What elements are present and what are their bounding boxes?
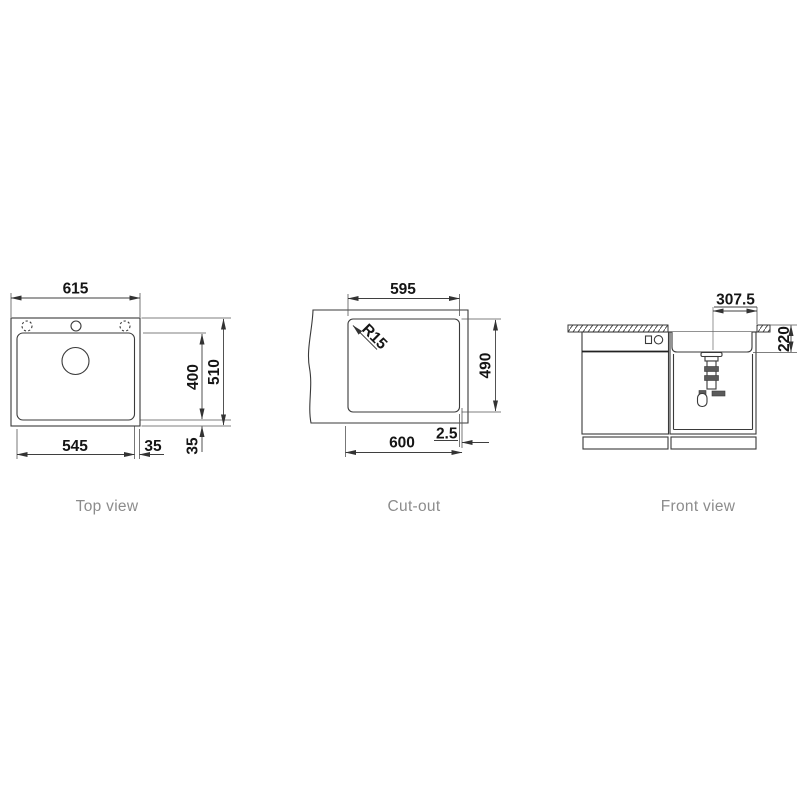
top-view-label: Top view — [76, 498, 139, 515]
plinth-right — [671, 437, 756, 449]
bowl-outline — [17, 333, 135, 420]
dim-front-bowl-depth: 220 — [776, 326, 793, 352]
dim-offset-right: 35 — [144, 438, 162, 455]
dim-edge-offset: 2.5 — [436, 426, 458, 443]
countertop-hatch-left — [568, 325, 668, 332]
dim-cutout-width-bottom: 600 — [389, 435, 415, 452]
dim-cutout-depth: 490 — [478, 353, 495, 379]
drawing-svg: 615 400 510 545 35 35 595 R15 490 600 — [0, 0, 800, 800]
countertop-hatch-right — [757, 325, 770, 332]
front-view-label: Front view — [661, 498, 736, 515]
sink-bowl-front — [672, 332, 752, 352]
cleanout-cap — [698, 394, 708, 407]
cutout-view: 595 R15 490 600 2.5 — [308, 281, 501, 457]
front-view: 307.5 220 — [568, 292, 797, 450]
dim-cutout-width-top: 595 — [390, 281, 416, 298]
drain-strainer-flange — [701, 353, 722, 357]
dim-bowl-width: 545 — [62, 438, 88, 455]
knob-circle — [654, 336, 662, 344]
coupling-nut — [705, 367, 719, 372]
dim-overall-depth: 510 — [206, 359, 223, 385]
top-view: 615 400 510 545 35 35 — [11, 281, 231, 460]
dim-bowl-depth: 400 — [185, 364, 202, 390]
dim-offset-bottom: 35 — [185, 437, 202, 455]
coupling-nut — [705, 376, 719, 381]
technical-drawing-sheet: 615 400 510 545 35 35 595 R15 490 600 — [0, 0, 800, 800]
cabinet-left — [582, 332, 669, 434]
cutout-view-label: Cut-out — [388, 498, 441, 515]
dim-drain-to-edge: 307.5 — [716, 292, 755, 309]
plinth-left — [583, 437, 668, 449]
trap-tailpiece — [707, 361, 716, 389]
drain-strainer-body — [705, 357, 718, 362]
dim-overall-width: 615 — [63, 281, 89, 298]
dispenser-rect — [646, 336, 652, 344]
coupling-nut — [712, 391, 725, 396]
